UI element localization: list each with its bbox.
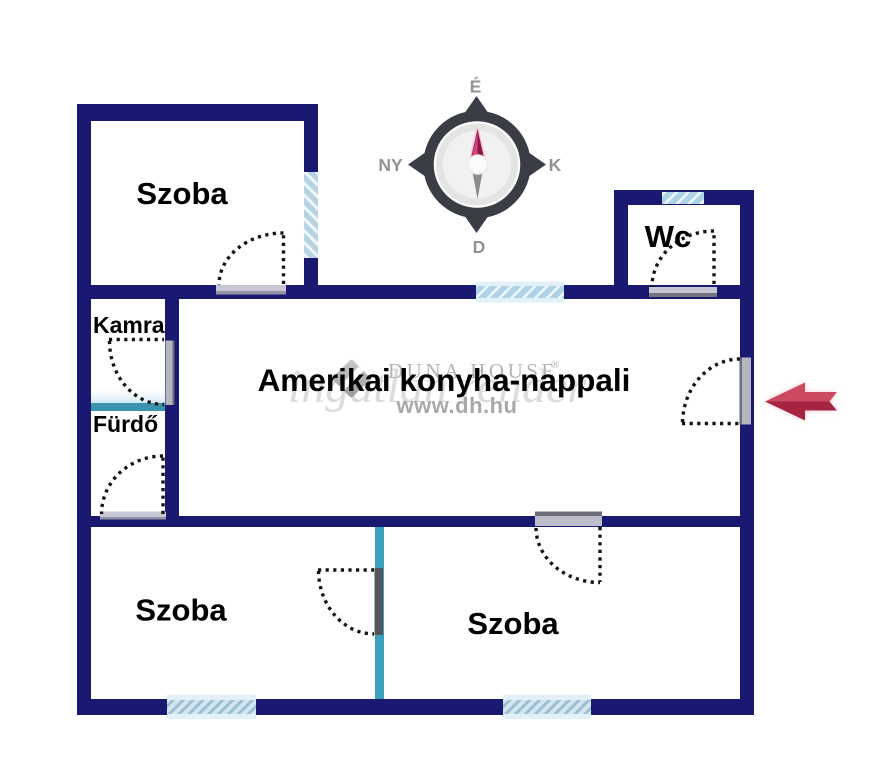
svg-text:Wc: Wc [645, 219, 692, 254]
svg-text:Szoba: Szoba [136, 176, 228, 211]
svg-text:Szoba: Szoba [135, 593, 227, 628]
svg-text:Amerikai konyha-nappali: Amerikai konyha-nappali [258, 362, 631, 398]
svg-text:D: D [473, 237, 486, 257]
svg-text:Fürdő: Fürdő [93, 411, 158, 437]
svg-text:Szoba: Szoba [467, 606, 559, 641]
svg-text:Kamra: Kamra [93, 312, 165, 338]
svg-text:K: K [549, 155, 562, 175]
svg-text:NY: NY [378, 155, 403, 175]
svg-text:É: É [470, 76, 482, 97]
